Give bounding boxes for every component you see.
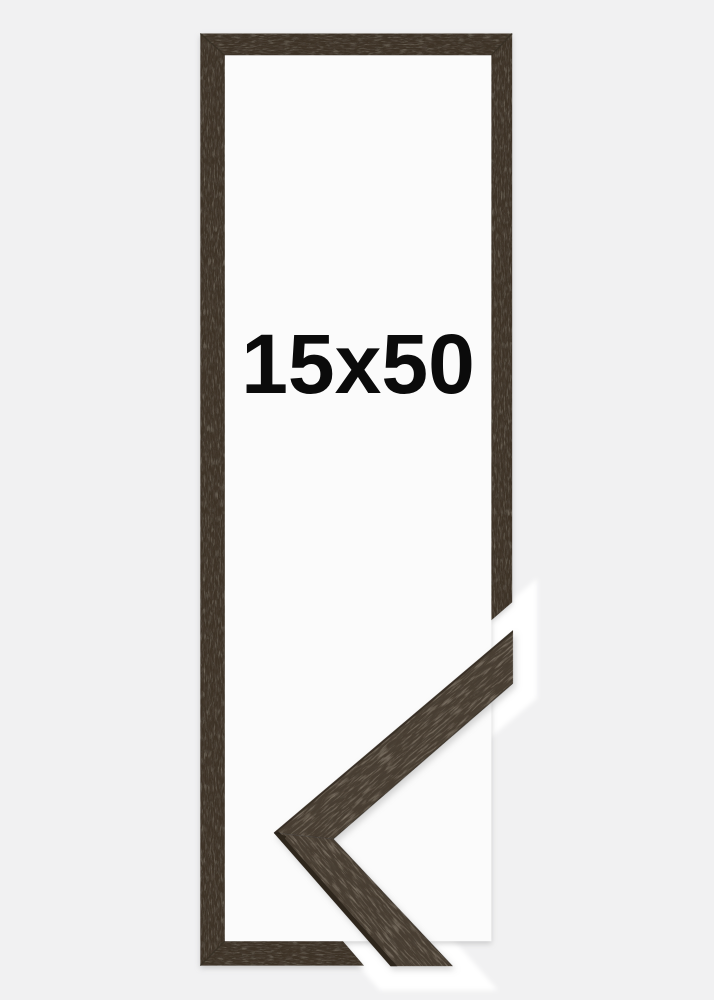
svg-text:15x50: 15x50 — [241, 317, 475, 411]
